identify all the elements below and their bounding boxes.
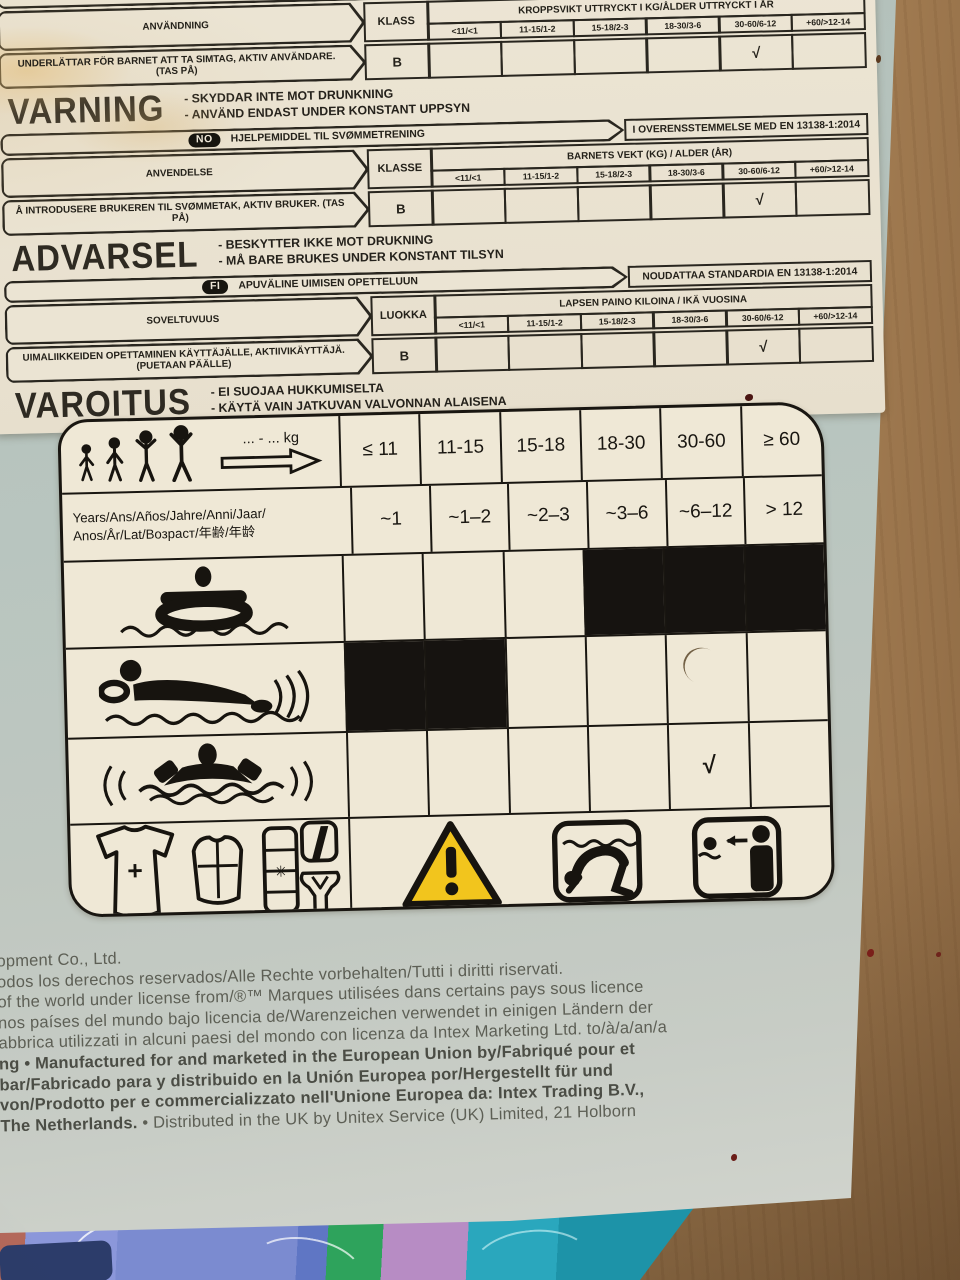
sv-warning-lines: - SKYDDAR INTE MOT DRUNKNING - ANVÄND EN…: [184, 85, 470, 124]
garment-icons: ✳: [78, 817, 342, 918]
cell: [435, 335, 511, 373]
cell: [504, 637, 586, 727]
cell: [342, 554, 424, 641]
range-header: <11/<1: [427, 21, 503, 41]
cell: [587, 725, 669, 811]
range-header: 18-30/3-6: [645, 15, 721, 35]
range-header: 15-18/2-3: [579, 311, 655, 331]
range-header: 30-60/6-12: [721, 160, 797, 180]
cell: [791, 32, 867, 70]
box-face-content: FLYTHJÄLPMEDEL TILL SIMTRÄNING ANVÄNDNIN…: [0, 0, 960, 1280]
range-header: <11/<1: [434, 314, 510, 334]
cell: [427, 41, 503, 79]
not-applicable-cell: [344, 641, 426, 731]
cell: [346, 731, 428, 817]
years-label-cell: Years/Ans/Años/Jahre/Anni/Jaar/ Anos/År/…: [62, 488, 352, 561]
weight-range-arrow-icon: [216, 447, 327, 476]
range-header: <11/<1: [430, 167, 506, 187]
no-warning-word: ADVARSEL: [11, 237, 199, 276]
weight-col: 11-15: [419, 412, 501, 484]
weight-col: 18-30: [579, 408, 661, 480]
years-col: ~1: [350, 486, 430, 554]
sv-usage-label: ANVÄNDNING: [142, 21, 209, 34]
range-header: 30-60/6-12: [725, 307, 801, 327]
checkmark-cell: √: [725, 328, 801, 366]
baby-swim-ring-icon: [64, 556, 344, 648]
kg-label: ... - ... kg: [242, 430, 299, 447]
swimming-with-armbands-icon: [66, 643, 346, 738]
range-header: 18-30/3-6: [649, 162, 725, 182]
cell: [798, 326, 874, 364]
weight-col: 15-18: [499, 410, 581, 482]
cell: [576, 184, 652, 222]
no-class-value: B: [367, 190, 434, 228]
years-col: ~6–12: [665, 478, 745, 546]
growing-children-icon: [73, 423, 206, 489]
fi-usage-label: SOVELTUVUUS: [146, 314, 219, 327]
svg-text:✳: ✳: [274, 864, 287, 881]
no-country-badge: NO: [188, 132, 221, 148]
no-usage-label-banner: ANVENDELSE: [1, 149, 370, 198]
sv-class-value: B: [364, 43, 431, 81]
range-header: 15-18/2-3: [572, 17, 648, 37]
range-header: +60/>12-14: [798, 306, 874, 326]
years-col: ~3–6: [586, 480, 666, 548]
sv-warning-word: VARNING: [7, 91, 165, 129]
range-header: 30-60/6-12: [718, 13, 794, 33]
cell: [431, 188, 507, 226]
no-diving-head-first-icon: [550, 818, 644, 904]
norwegian-section: NO HJELPEMIDDEL TIL SVØMMETRENING I OVER…: [0, 113, 871, 279]
no-class-header: KLASSE: [366, 148, 433, 190]
no-product-text: HJELPEMIDDEL TIL SVØMMETRENING: [231, 129, 425, 145]
range-header: 15-18/2-3: [576, 164, 652, 184]
checkmark-cell: √: [722, 181, 798, 219]
legal-text-block: opment Co., Ltd. odos los derechos reser…: [0, 930, 880, 1137]
sv-usage-text: UNDERLÄTTAR FÖR BARNET ATT TA SIMTAG, AK…: [6, 52, 346, 82]
floating-with-armbands-icon: [68, 733, 348, 824]
no-warning-lines: - BESKYTTER IKKE MOT DRUKNING - MÅ BARE …: [218, 231, 504, 270]
adult-supervision-icon: [690, 814, 784, 900]
fi-class-header: LUOKKA: [370, 295, 437, 337]
not-applicable-cell: [663, 546, 745, 633]
range-header: 18-30/3-6: [652, 309, 728, 329]
fi-standard-cell: NOUDATTAA STANDARDIA EN 13138-1:2014: [628, 260, 872, 288]
no-usage-text: Å INTRODUSERE BRUKEREN TIL SVØMMETAK, AK…: [10, 199, 350, 229]
safety-icons-cell: [348, 807, 832, 915]
fi-usage-label-banner: SOVELTUVUUS: [4, 296, 373, 345]
range-header: +60/>12-14: [790, 12, 866, 32]
fi-usage-text: UIMALIIKKEIDEN OPETTAMINEN KÄYTTÄJÄLLE, …: [14, 346, 354, 376]
weight-col: ≥ 60: [740, 404, 822, 476]
cell: [646, 36, 722, 74]
cell: [500, 39, 576, 77]
swedish-section: FLYTHJÄLPMEDEL TILL SIMTRÄNING ANVÄNDNIN…: [0, 0, 868, 132]
weight-col: ≤ 11: [338, 414, 420, 486]
not-applicable-cell: [743, 544, 825, 631]
cell: [573, 37, 649, 75]
cell: [422, 552, 504, 639]
years-col: > 12: [743, 476, 823, 544]
cell: [580, 331, 656, 369]
cell: [649, 183, 725, 221]
years-col: ~2–3: [507, 482, 587, 550]
weight-col: 30-60: [659, 406, 741, 478]
range-header: 11-15/1-2: [500, 19, 576, 39]
range-header: 11-15/1-2: [507, 313, 583, 333]
cell: [745, 631, 827, 721]
no-usage-label: ANVENDELSE: [146, 168, 213, 181]
cell: [426, 729, 508, 815]
swim-trainer-icon: [301, 872, 339, 913]
cell: [507, 333, 583, 371]
fi-product-text: APUVÄLINE UIMISEN OPETTELUUN: [238, 276, 418, 292]
range-header: 11-15/1-2: [503, 166, 579, 186]
not-applicable-cell: [583, 548, 665, 635]
warning-triangle-icon: [398, 818, 504, 911]
cell: [585, 635, 667, 725]
fi-class-value: B: [371, 337, 438, 375]
no-standard-cell: I OVERENSSTEMMELSE MED EN 13138-1:2014: [624, 113, 868, 141]
weight-range-arrow: ... - ... kg: [216, 429, 327, 476]
cell: [507, 727, 589, 813]
cell: [653, 329, 729, 367]
years-col: ~1–2: [429, 484, 509, 552]
cell: [502, 550, 584, 637]
checkmark-cell: √: [718, 34, 794, 72]
size-header-cell: ... - ... kg: [60, 416, 340, 493]
finnish-section: FI APUVÄLINE UIMISEN OPETTELUUN NOUDATTA…: [4, 260, 875, 426]
photo-of-product-box: FLYTHJÄLPMEDEL TILL SIMTRÄNING ANVÄNDNIN…: [0, 0, 960, 1280]
garment-icons-cell: ✳: [70, 819, 350, 918]
range-header: +60/>12-14: [794, 159, 870, 179]
not-applicable-cell: [424, 639, 506, 729]
warning-label: FLYTHJÄLPMEDEL TILL SIMTRÄNING ANVÄNDNIN…: [0, 0, 885, 434]
cell: [748, 721, 830, 807]
checkmark-cell: √: [667, 723, 749, 809]
fi-country-badge: FI: [202, 279, 229, 294]
cell: [795, 179, 871, 217]
sv-class-header: KLASS: [363, 1, 430, 43]
sv-usage-label-banner: ANVÄNDNING: [0, 2, 366, 51]
cell: [504, 186, 580, 224]
